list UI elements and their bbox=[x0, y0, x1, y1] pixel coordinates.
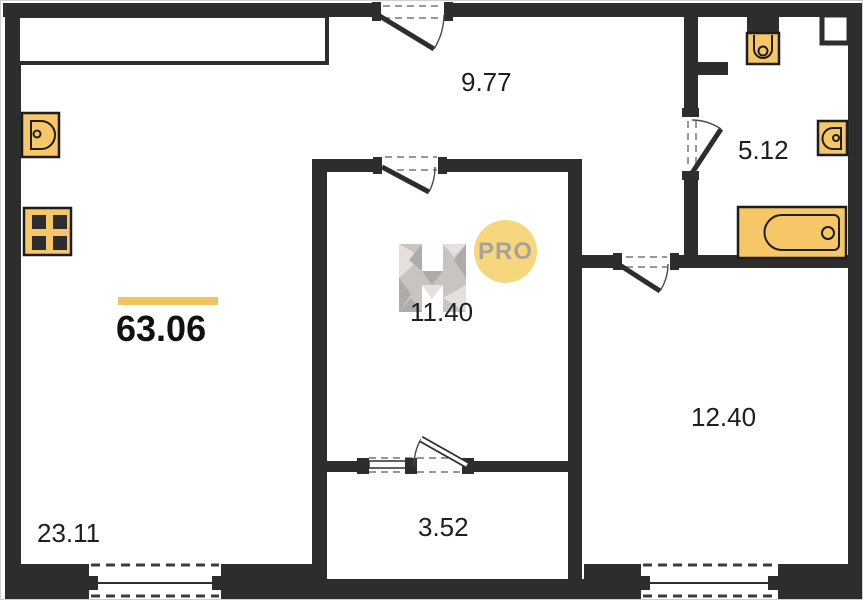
stove-burner bbox=[53, 236, 67, 250]
total-area-label: 63.06 bbox=[116, 308, 206, 350]
room-label-hallway: 9.77 bbox=[461, 68, 512, 98]
door-post bbox=[405, 458, 417, 474]
wall-segment bbox=[471, 461, 568, 472]
stove-burner bbox=[32, 236, 46, 250]
wall-segment bbox=[568, 159, 582, 599]
closet-door bbox=[357, 439, 474, 474]
wall-segment bbox=[684, 17, 698, 116]
door-post bbox=[670, 253, 679, 270]
door-leaf-core bbox=[421, 439, 467, 465]
room-label-middle-room: 11.40 bbox=[410, 298, 473, 328]
bathtub-icon bbox=[738, 207, 846, 258]
door-post bbox=[682, 108, 699, 117]
stove-icon bbox=[24, 208, 71, 255]
wall-segment bbox=[848, 3, 862, 599]
door-leaf bbox=[618, 264, 660, 291]
toilet-tank bbox=[747, 15, 779, 33]
bathroom-door bbox=[682, 108, 721, 180]
door-swing-arc bbox=[434, 15, 444, 49]
door-post bbox=[438, 157, 447, 174]
wall-segment bbox=[584, 564, 641, 599]
vent-shaft bbox=[822, 15, 849, 43]
wall-segment bbox=[326, 579, 584, 599]
wall-segment bbox=[698, 62, 728, 75]
wall-segment bbox=[582, 255, 616, 268]
floor-plan: PRO 9.77 5.12 11.40 12.40 3.52 23.11 63.… bbox=[0, 0, 863, 600]
wall-segment bbox=[312, 159, 327, 579]
window-living bbox=[87, 565, 223, 596]
window-post bbox=[212, 576, 223, 590]
pro-badge-label: PRO bbox=[478, 238, 533, 266]
door-post bbox=[373, 157, 382, 174]
wall-segment bbox=[778, 564, 848, 599]
room-label-bathroom: 5.12 bbox=[738, 136, 789, 166]
entrance-door bbox=[372, 2, 453, 49]
door-post bbox=[357, 458, 369, 474]
right-room-door bbox=[613, 253, 679, 291]
door-leaf bbox=[378, 15, 434, 49]
sliding-panel bbox=[369, 461, 406, 468]
interior-walls bbox=[312, 17, 848, 599]
kitchen-counter bbox=[18, 16, 327, 63]
pro-badge: PRO bbox=[474, 220, 537, 283]
door-swing-arc bbox=[660, 264, 668, 291]
wall-segment bbox=[684, 176, 698, 268]
room-label-living-kitchen: 23.11 bbox=[37, 519, 100, 549]
toilet-bowl-body bbox=[747, 33, 779, 64]
door-post bbox=[682, 171, 699, 180]
bathroom-sink-icon bbox=[818, 121, 847, 155]
kitchen-sink-icon bbox=[22, 113, 59, 157]
middle-room-door bbox=[373, 157, 447, 192]
window-post bbox=[87, 576, 98, 590]
window-post bbox=[768, 576, 779, 590]
wall-segment bbox=[443, 159, 582, 172]
total-area-accent-bar bbox=[118, 297, 218, 305]
stove-burner bbox=[53, 215, 67, 229]
wall-segment bbox=[221, 564, 326, 599]
window-right-room bbox=[639, 565, 779, 596]
window-post bbox=[639, 576, 650, 590]
stove-burner bbox=[32, 215, 46, 229]
room-label-closet: 3.52 bbox=[418, 513, 469, 543]
wall-segment bbox=[17, 564, 89, 599]
toilet-icon bbox=[747, 15, 779, 64]
wall-segment bbox=[450, 3, 862, 17]
room-label-right-room: 12.40 bbox=[691, 403, 756, 433]
door-post bbox=[444, 2, 453, 21]
wall-segment bbox=[5, 3, 21, 599]
